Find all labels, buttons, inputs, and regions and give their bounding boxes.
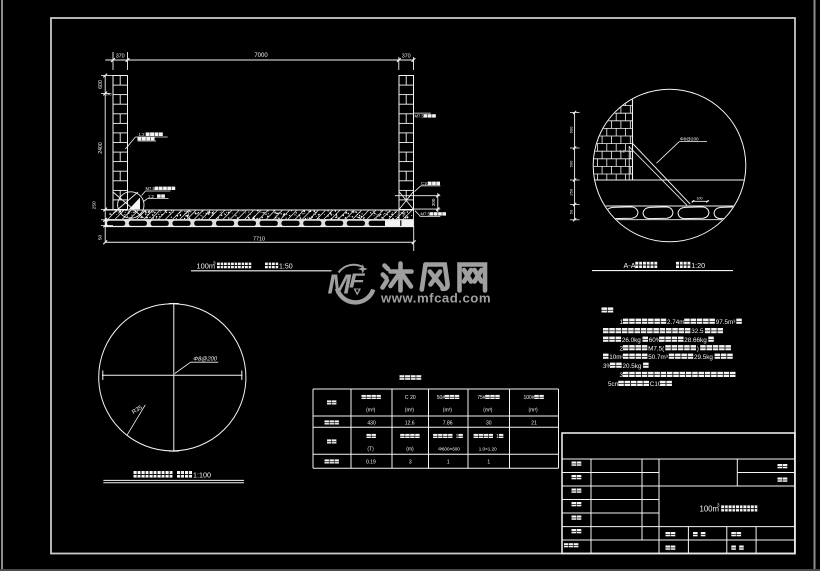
svg-text:1:2: 1:2	[139, 132, 146, 137]
svg-text:(m³): (m³)	[366, 408, 375, 414]
svg-text:7000: 7000	[254, 53, 268, 59]
svg-text:250: 250	[92, 201, 98, 209]
svg-text:(T): (T)	[367, 447, 374, 453]
svg-text:600: 600	[98, 80, 104, 89]
svg-text:A-A: A-A	[624, 261, 636, 270]
svg-text:32.5: 32.5	[691, 328, 704, 335]
svg-text:100: 100	[697, 196, 703, 200]
svg-text:21: 21	[531, 421, 537, 427]
svg-text:(m³): (m³)	[529, 408, 538, 414]
svg-text:2400: 2400	[98, 142, 104, 154]
svg-text:50#: 50#	[437, 395, 446, 401]
svg-text:7.86: 7.86	[443, 421, 453, 427]
svg-text:(m³): (m³)	[405, 408, 414, 414]
svg-text:1:50: 1:50	[279, 263, 293, 270]
svg-text:2.74m: 2.74m	[667, 319, 685, 326]
svg-text:R35: R35	[131, 404, 144, 415]
svg-text:(m): (m)	[406, 447, 414, 453]
svg-text:500: 500	[569, 160, 574, 167]
svg-text:(m³): (m³)	[443, 408, 452, 414]
svg-text:M7.5: M7.5	[415, 114, 425, 119]
svg-text:100#: 100#	[524, 395, 535, 401]
svg-text:): )	[697, 345, 699, 352]
svg-text:26.0kg: 26.0kg	[622, 337, 641, 344]
svg-text:C: C	[405, 395, 409, 401]
svg-text:1: 1	[447, 460, 450, 466]
svg-text:250: 250	[569, 188, 574, 195]
svg-text:30: 30	[486, 421, 492, 427]
svg-text:50.7m³: 50.7m³	[648, 354, 668, 361]
svg-text:370: 370	[402, 54, 411, 60]
svg-text:370: 370	[116, 54, 125, 60]
svg-text:C10: C10	[650, 381, 662, 388]
svg-text:1: 1	[496, 434, 499, 440]
svg-text:1:100: 1:100	[193, 471, 211, 480]
svg-text:1:20: 1:20	[691, 261, 705, 270]
svg-text:M7.5: M7.5	[146, 186, 156, 191]
svg-text:12.6: 12.6	[405, 421, 415, 427]
svg-text:3: 3	[717, 503, 720, 509]
svg-text:www.mfcad.com: www.mfcad.com	[380, 291, 491, 306]
svg-text:20: 20	[410, 395, 416, 401]
svg-text:M7.5: M7.5	[421, 212, 431, 217]
svg-text:97.5m³: 97.5m³	[716, 319, 736, 326]
svg-text:7710: 7710	[253, 237, 265, 243]
svg-text:28.66kg: 28.66kg	[684, 337, 707, 344]
svg-text:75#: 75#	[477, 395, 486, 401]
svg-text:29.5kg: 29.5kg	[694, 354, 713, 361]
svg-text:300: 300	[431, 198, 436, 206]
svg-text:50: 50	[569, 209, 574, 214]
svg-text:10m³: 10m³	[609, 354, 623, 361]
svg-text:M7.5(: M7.5(	[648, 345, 665, 352]
svg-text:3: 3	[213, 261, 216, 266]
svg-text:600: 600	[569, 126, 574, 133]
svg-text:Φ8@200: Φ8@200	[680, 136, 699, 141]
svg-text:20.5kg: 20.5kg	[623, 363, 642, 370]
svg-text:5cm: 5cm	[608, 381, 620, 388]
svg-text:Φ8@200: Φ8@200	[192, 357, 218, 363]
svg-text:0.19: 0.19	[366, 460, 376, 466]
svg-text:1:2: 1:2	[620, 149, 626, 154]
svg-text:Φ600×600: Φ600×600	[438, 447, 460, 452]
svg-text:1.0×1.20: 1.0×1.20	[479, 447, 497, 452]
svg-text:M: M	[328, 269, 352, 300]
svg-text:3: 3	[409, 460, 412, 466]
svg-text:1: 1	[456, 434, 459, 440]
svg-text:1: 1	[487, 460, 490, 466]
svg-text:430: 430	[367, 421, 376, 427]
svg-text:50: 50	[98, 235, 104, 241]
svg-text:1:2: 1:2	[148, 194, 154, 199]
svg-text:240: 240	[106, 93, 112, 97]
svg-text:(m³): (m³)	[483, 408, 492, 414]
